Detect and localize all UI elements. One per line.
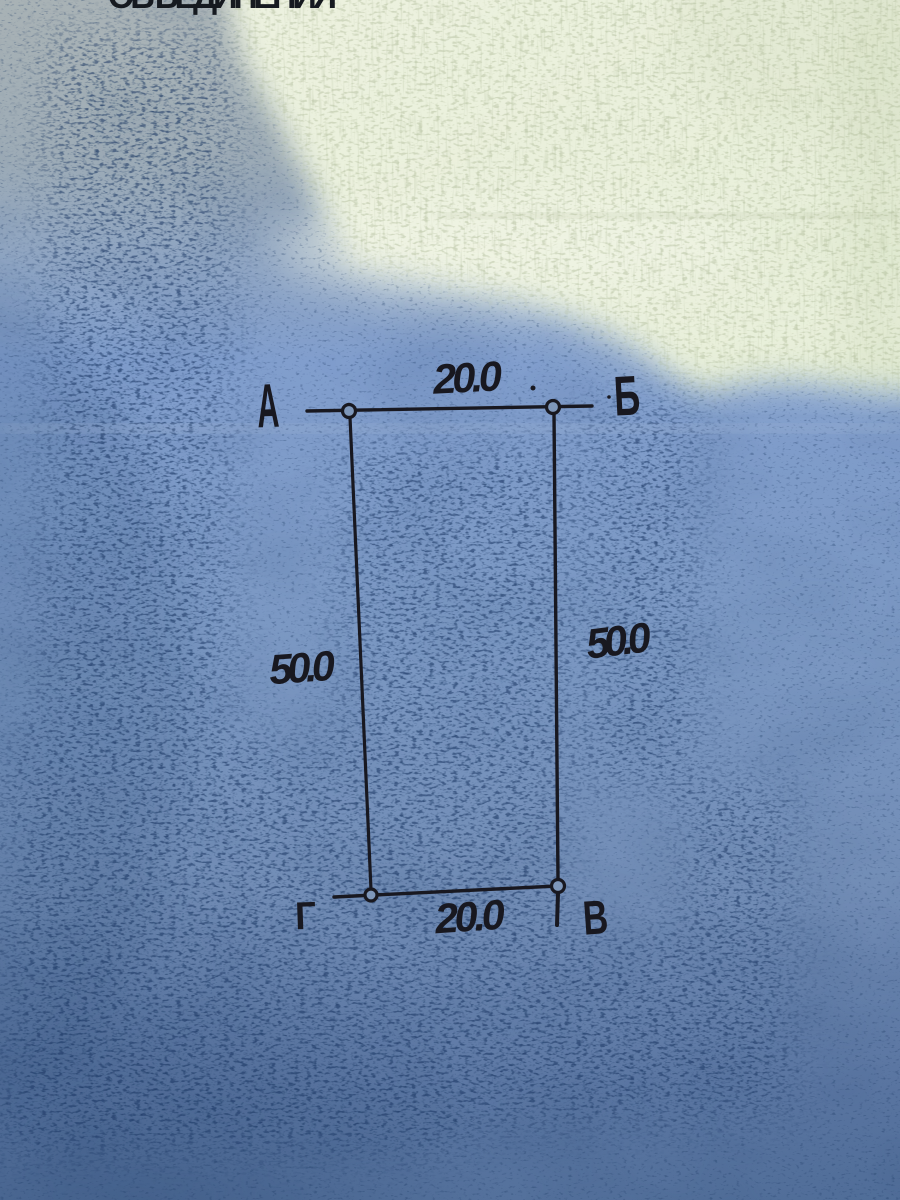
- svg-text:20.0: 20.0: [432, 891, 506, 943]
- svg-text:ОБЪЕДИНЕНИЯ: ОБЪЕДИНЕНИЯ: [108, 0, 338, 16]
- svg-text:Г: Г: [294, 895, 316, 939]
- svg-text:50.0: 50.0: [583, 613, 653, 668]
- svg-text:20.0: 20.0: [431, 352, 503, 403]
- svg-text:50.0: 50.0: [267, 642, 336, 693]
- svg-text:А: А: [256, 372, 280, 442]
- svg-text:В: В: [581, 891, 610, 946]
- svg-text:Б: Б: [612, 363, 641, 427]
